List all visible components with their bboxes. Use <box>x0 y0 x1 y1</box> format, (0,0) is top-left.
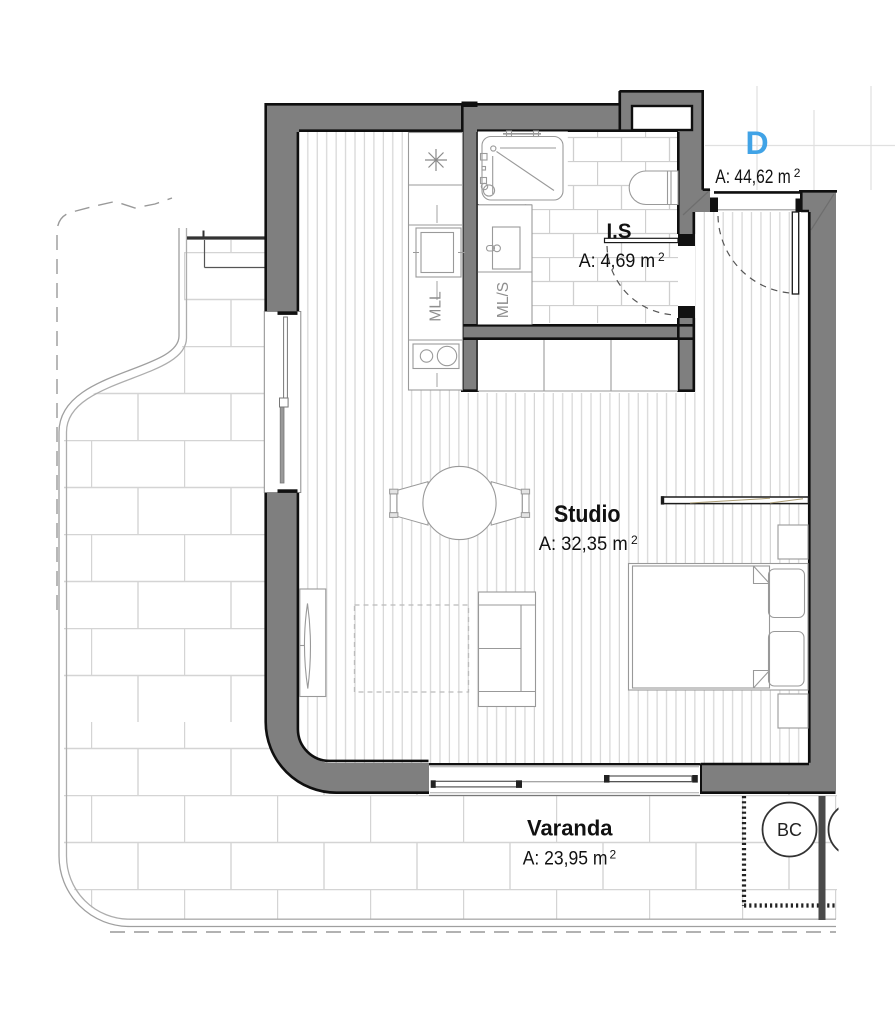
svg-text:A: 32,35 m: A: 32,35 m <box>539 533 628 555</box>
svg-text:I.S: I.S <box>607 219 632 243</box>
svg-text:A: 23,95 m: A: 23,95 m <box>523 848 608 870</box>
svg-text:A: 4,69 m: A: 4,69 m <box>579 250 656 272</box>
svg-text:ML/S: ML/S <box>495 282 512 318</box>
svg-text:2: 2 <box>794 166 801 180</box>
svg-text:Varanda: Varanda <box>527 816 613 841</box>
svg-text:Studio: Studio <box>554 501 621 528</box>
svg-text:MLL: MLL <box>427 291 444 322</box>
svg-text:2: 2 <box>631 533 638 547</box>
svg-text:A: 44,62 m: A: 44,62 m <box>715 166 791 188</box>
svg-text:2: 2 <box>610 848 617 862</box>
svg-text:BC: BC <box>777 820 802 840</box>
svg-text:2: 2 <box>658 250 665 264</box>
svg-text:D: D <box>746 125 769 161</box>
